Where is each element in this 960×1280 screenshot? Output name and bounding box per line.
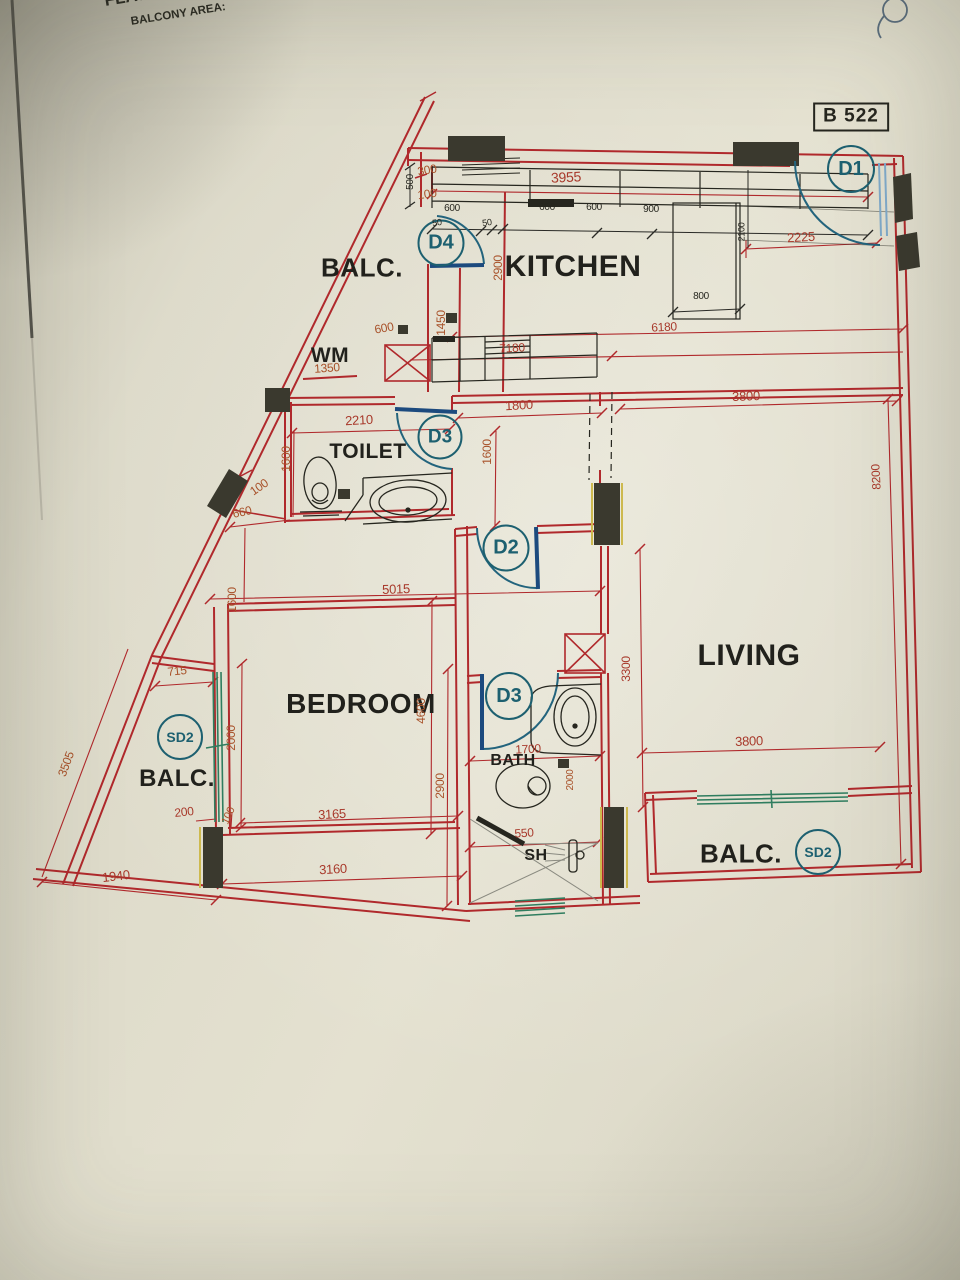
dim-label: 3800: [732, 389, 760, 403]
dim-label: 550: [514, 826, 534, 839]
door-tag-d3-bath: D3: [485, 672, 533, 720]
door-tag-sd2-bottom: SD2: [795, 829, 841, 875]
dim-label: 1940: [101, 868, 130, 884]
dim-label: 800: [693, 292, 709, 302]
dim-label: 3165: [318, 807, 346, 821]
dim-label: 100: [248, 477, 271, 498]
dim-label: 1700: [515, 742, 541, 755]
dim-label: 600: [539, 203, 555, 213]
dim-label: 2900: [434, 773, 446, 799]
dim-label: 50: [432, 218, 443, 228]
dim-label: 2000: [566, 769, 576, 790]
dim-label: 100: [417, 187, 438, 202]
dim-label: 5015: [382, 582, 410, 596]
dim-label: 3300: [620, 656, 632, 682]
header-flat-title: FLAT: [103, 0, 148, 11]
dim-label: 2100: [738, 223, 747, 242]
floor-plan-photo: FLAT BALCONY AREA: B 522 BALC. KITCHEN T…: [0, 0, 960, 1280]
dim-label: 600: [444, 204, 460, 214]
dim-label: 200: [174, 805, 194, 819]
room-label-toilet: TOILET: [329, 440, 406, 464]
door-tag-d3-toilet: D3: [418, 415, 463, 460]
header-balcony-area: BALCONY AREA:: [130, 1, 227, 28]
dim-label: 1600: [226, 587, 238, 613]
labels-layer: FLAT BALCONY AREA: B 522 BALC. KITCHEN T…: [0, 0, 960, 1280]
dim-label: 600: [586, 203, 602, 213]
room-label-kitchen: KITCHEN: [505, 250, 642, 284]
room-label-shower: SH: [524, 847, 547, 865]
door-tag-d1: D1: [827, 145, 875, 193]
door-tag-d2: D2: [483, 525, 530, 572]
dim-label: 1600: [481, 439, 493, 465]
door-tag-sd2-left: SD2: [157, 714, 203, 760]
room-label-balcony-bottom: BALC.: [700, 839, 782, 870]
dim-label: 2000: [225, 725, 237, 751]
room-label-balcony-left: BALC.: [139, 765, 215, 793]
dim-label: 715: [167, 664, 187, 678]
dim-label: 900: [643, 205, 659, 215]
dim-label: 3160: [319, 862, 347, 876]
dim-label: 500: [406, 174, 416, 190]
dim-label: 660: [231, 504, 252, 520]
dim-label: 4600: [415, 698, 427, 724]
dim-label: 7180: [499, 341, 525, 354]
dim-label: 300: [417, 162, 438, 177]
dim-label: 1600: [280, 446, 292, 472]
dim-label: 100: [220, 806, 237, 826]
dim-label: 1800: [505, 398, 533, 412]
dim-label: 2900: [492, 255, 504, 281]
sheet-code-badge: B 522: [813, 103, 889, 132]
dim-label: 1350: [314, 361, 340, 375]
dim-label: 6180: [651, 320, 677, 333]
dim-label: 2210: [345, 413, 373, 427]
dim-label: 50: [482, 218, 493, 228]
dim-label: 2225: [787, 230, 815, 244]
room-label-living: LIVING: [697, 639, 800, 673]
dim-label: 8200: [869, 464, 882, 490]
room-label-balcony-top: BALC.: [321, 253, 403, 284]
dim-label: 3800: [735, 734, 763, 748]
dim-label: 1450: [435, 310, 447, 336]
dim-label: 3505: [56, 750, 76, 778]
dim-label: 3955: [551, 169, 582, 185]
dim-label: 600: [374, 320, 395, 335]
